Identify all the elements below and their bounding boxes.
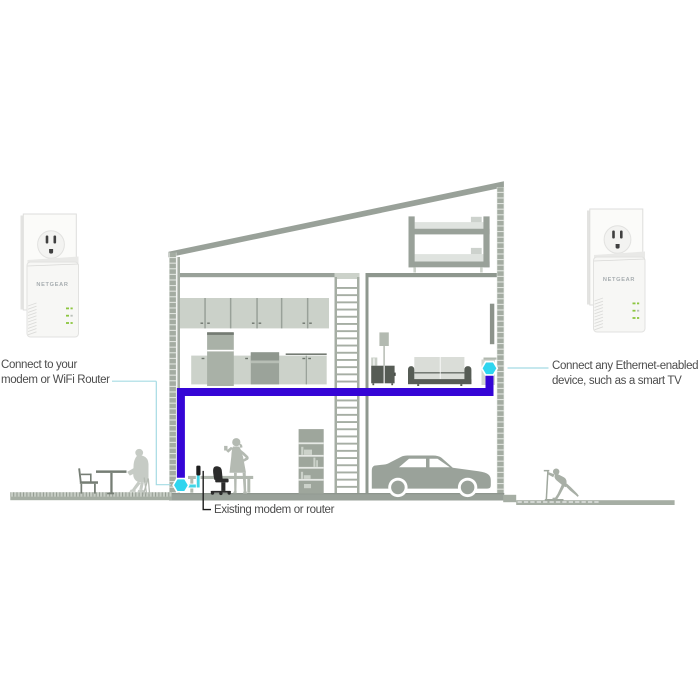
svg-text:NETGEAR: NETGEAR <box>36 282 68 288</box>
svg-text:NETGEAR: NETGEAR <box>603 277 635 283</box>
